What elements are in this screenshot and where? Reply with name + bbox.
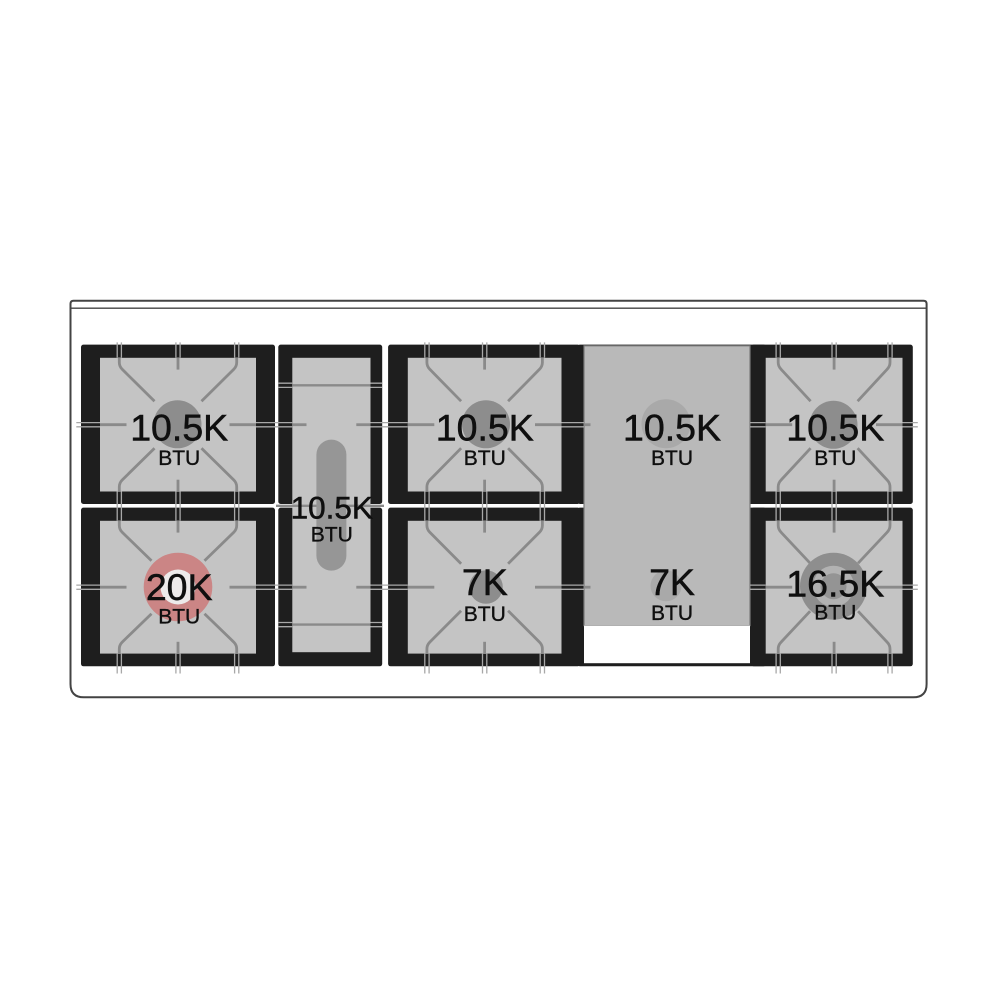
- svg-text:BTU: BTU: [651, 447, 693, 470]
- svg-text:20K: 20K: [146, 566, 213, 608]
- svg-text:16.5K: 16.5K: [786, 563, 884, 605]
- svg-text:7K: 7K: [649, 561, 695, 603]
- svg-text:10.5K: 10.5K: [786, 407, 884, 449]
- svg-text:BTU: BTU: [651, 602, 693, 625]
- svg-text:10.5K: 10.5K: [623, 407, 721, 449]
- svg-text:BTU: BTU: [814, 447, 856, 470]
- svg-text:BTU: BTU: [158, 605, 200, 628]
- svg-text:BTU: BTU: [464, 447, 506, 470]
- svg-text:BTU: BTU: [464, 603, 506, 626]
- svg-text:7K: 7K: [462, 561, 508, 603]
- svg-text:BTU: BTU: [311, 524, 353, 547]
- svg-text:BTU: BTU: [814, 602, 856, 625]
- svg-text:10.5K: 10.5K: [130, 407, 228, 449]
- svg-text:10.5K: 10.5K: [291, 490, 373, 526]
- svg-text:BTU: BTU: [158, 447, 200, 470]
- svg-text:10.5K: 10.5K: [436, 407, 534, 449]
